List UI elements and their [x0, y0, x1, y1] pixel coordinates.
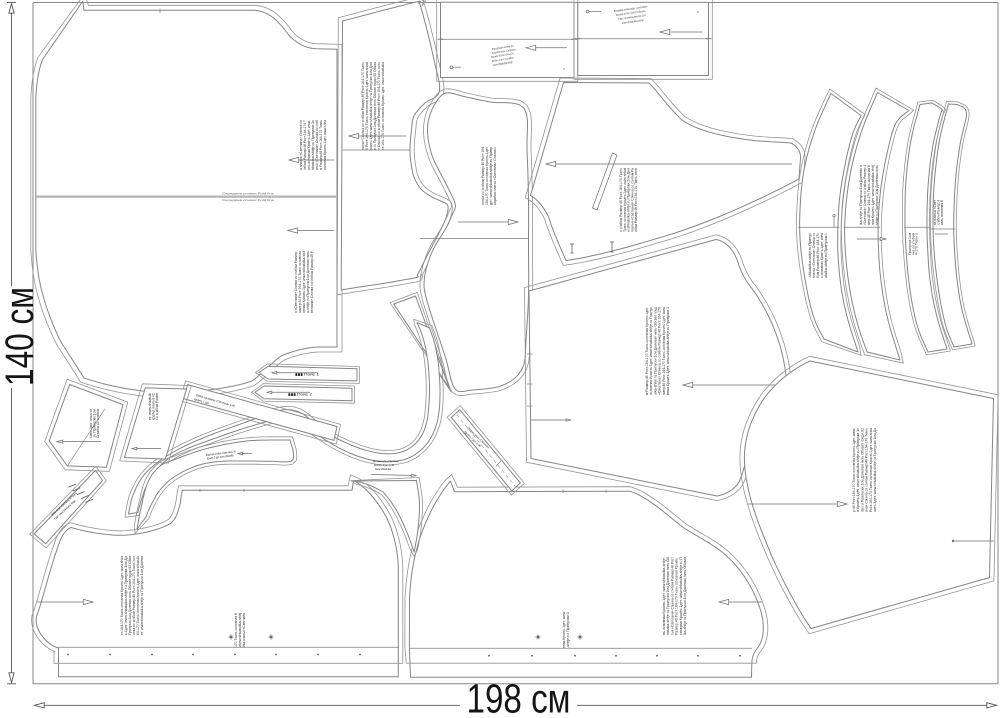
- svg-text:lka-shitje.ru Припуски:1см Дол: lka-shitje.ru Припуски:1см Долевая нить …: [683, 556, 687, 635]
- svg-text:198 см: 198 см: [467, 676, 571, 718]
- svg-text:atulka-shitje.ru Припуски:1: atulka-shitje.ru Припуски:1: [824, 233, 828, 278]
- svg-text:ст:164-170 Ткань основная Крои: ст:164-170 Ткань основная Кроить:1дет. w…: [381, 62, 385, 150]
- svg-text:ветлана» Спинка со сгибом Разм: ветлана» Спинка со сгибом Размер:46 Р: [310, 251, 314, 313]
- svg-text:-shitje.ru Припуски:1: -shitje.ru Припуски:1: [566, 612, 570, 648]
- svg-text:Середина спинки Fold line: Середина спинки Fold line: [222, 198, 274, 202]
- svg-text:▮▮▮ Пояс 1: ▮▮▮ Пояс 1: [295, 373, 319, 377]
- svg-text:вная Кроить:1дет. www.shkatulk: вная Кроить:1дет. www.shkatulka-shitje.r…: [666, 307, 670, 395]
- svg-text:Середина спинки Fold line: Середина спинки Fold line: [222, 192, 274, 196]
- svg-text:ибом Размер:46 Рост:164-170 Тк: ибом Размер:46 Рост:164-170 Ткань осно: [634, 168, 638, 232]
- svg-text:йка платья «Светлана: йка платья «Светлана: [242, 613, 246, 647]
- svg-text:140 см: 140 см: [0, 287, 42, 386]
- svg-text:со сгибом Разме: со сгибом Разме: [155, 393, 159, 420]
- svg-text:4-170 Ткань о: 4-170 Ткань о: [915, 233, 919, 255]
- svg-text:▮▮▮ Пояс 2: ▮▮▮ Пояс 2: [288, 392, 312, 396]
- svg-text:ет. www.shkatulka-shitje.ru Пр: ет. www.shkatulka-shitje.ru Припуски:1см…: [140, 556, 144, 635]
- svg-text:основная Кроить:1дет. www.shka: основная Кроить:1дет. www.shka: [323, 120, 327, 170]
- svg-text:www.shkatulka: www.shkatulka: [375, 467, 391, 471]
- svg-text:кань основная К: кань основная К: [940, 200, 944, 225]
- svg-text:Спинка со сгибом: Спинка со сгибом: [96, 409, 100, 438]
- svg-text:ыкройка платья «Светлана» Спин: ыкройка платья «Светлана» Спинка с: [493, 147, 497, 205]
- svg-text:shitje.ru Припуски:1см Долевая: shitje.ru Припуски:1см Долевая нить: [875, 165, 879, 225]
- svg-text:оить:1дет. www.shkatulka-shitj: оить:1дет. www.shkatulka-shitje.ru Припу…: [873, 428, 877, 512]
